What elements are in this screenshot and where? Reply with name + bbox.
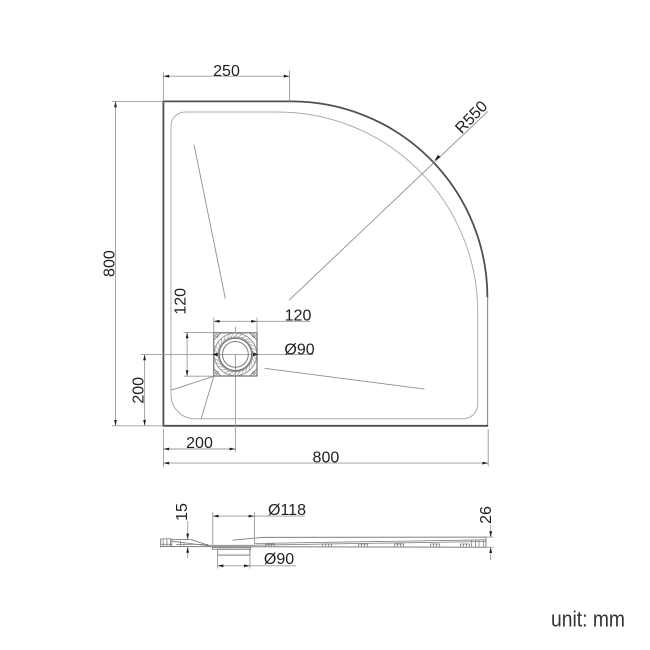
svg-text:15: 15 (174, 503, 191, 521)
svg-text:R550: R550 (452, 98, 491, 137)
svg-text:800: 800 (102, 250, 119, 277)
svg-text:120: 120 (285, 307, 312, 324)
svg-text:26: 26 (478, 506, 495, 524)
svg-text:250: 250 (213, 63, 240, 80)
svg-text:unit: mm: unit: mm (551, 607, 625, 632)
svg-text:Ø90: Ø90 (284, 342, 314, 359)
svg-text:200: 200 (186, 435, 213, 452)
svg-text:Ø118: Ø118 (268, 502, 306, 519)
svg-text:Ø90: Ø90 (264, 551, 294, 568)
svg-text:120: 120 (173, 288, 190, 315)
svg-text:200: 200 (130, 377, 147, 404)
svg-text:800: 800 (313, 450, 340, 467)
